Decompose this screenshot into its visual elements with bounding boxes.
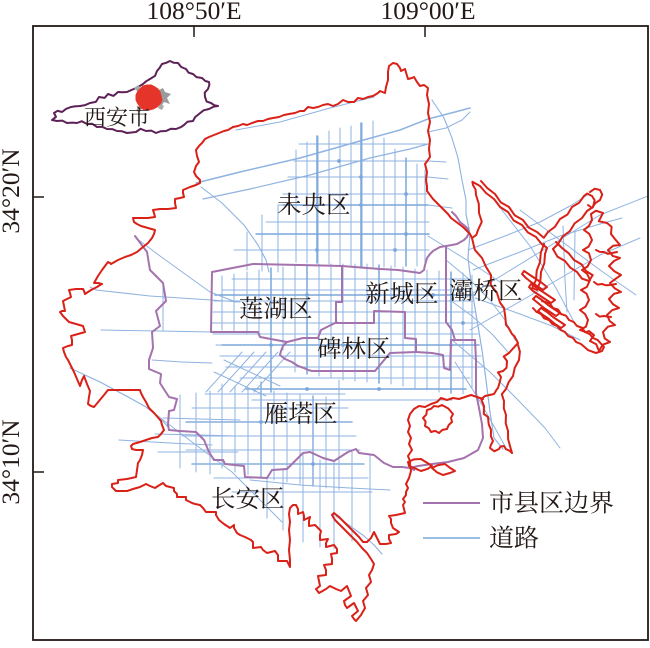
svg-text:108°50′E: 108°50′E (146, 0, 241, 25)
svg-text:34°20′N: 34°20′N (0, 148, 25, 233)
svg-text:109°00′E: 109°00′E (380, 0, 475, 25)
svg-text:34°10′N: 34°10′N (0, 419, 25, 504)
